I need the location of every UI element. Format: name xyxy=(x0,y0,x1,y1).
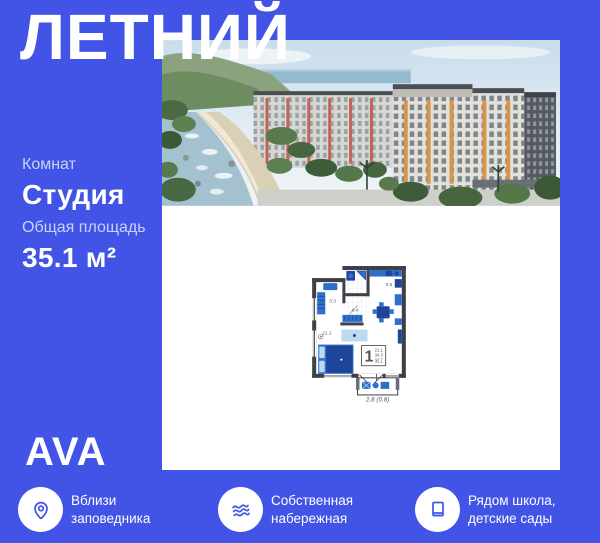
spec-total-area: Общая площадь 35.1 м² xyxy=(22,219,146,274)
waves-icon xyxy=(229,498,253,522)
area-without-balcony-value: 34.3 xyxy=(375,353,384,358)
feature-line: детские сады xyxy=(468,510,556,528)
feature-text: Рядом школа, детские сады xyxy=(468,492,556,528)
feature-icon-circle xyxy=(415,487,460,532)
spec-rooms-value: Студия xyxy=(22,179,125,211)
balcony-area-label: 2.8 (0.8) xyxy=(365,396,389,403)
feature-schools: Рядом школа, детские сады xyxy=(415,487,556,532)
floor-plan-drawing: 1 21.1 34.3 35.1 2.8 (0.8) xyxy=(312,266,406,403)
plan-summary-box: 1 21.1 34.3 35.1 xyxy=(362,346,386,366)
building-tower-middle xyxy=(393,84,473,191)
spec-area-value: 35.1 м² xyxy=(22,242,146,274)
floor-plan: 1 21.1 34.3 35.1 2.8 (0.8) xyxy=(312,266,406,403)
feature-text: Вблизи заповедника xyxy=(71,492,150,528)
feature-line: Вблизи xyxy=(71,492,150,510)
rooms-count: 1 xyxy=(365,348,374,366)
room-label-kitchen: 5.5 xyxy=(386,282,393,288)
feature-line: Собственная xyxy=(271,492,353,510)
feature-line: Рядом школа, xyxy=(468,492,556,510)
room-label-wardrobe: 3.3 xyxy=(329,298,336,304)
page-title: ЛЕТНИЙ xyxy=(20,5,291,69)
room-label-living: 21.1 xyxy=(322,331,332,337)
real-estate-poster: ЛЕТНИЙ xyxy=(0,0,600,543)
feature-line: заповедника xyxy=(71,510,150,528)
feature-line: набережная xyxy=(271,510,353,528)
feature-embankment: Собственная набережная xyxy=(218,487,353,532)
living-area-value: 21.1 xyxy=(375,348,384,353)
feature-nature-reserve: Вблизи заповедника xyxy=(18,487,150,532)
spec-rooms-label: Комнат xyxy=(22,156,125,174)
balcony: 2.8 (0.8) xyxy=(356,374,399,403)
feature-icon-circle xyxy=(18,487,63,532)
location-pin-icon xyxy=(29,498,53,522)
feature-icon-circle xyxy=(218,487,263,532)
book-icon xyxy=(426,498,450,522)
total-area-value: 35.1 xyxy=(375,359,384,364)
brand-logo: AVA xyxy=(25,432,107,472)
floor-plan-panel: 1 21.1 34.3 35.1 2.8 (0.8) xyxy=(162,206,560,470)
feature-text: Собственная набережная xyxy=(271,492,353,528)
spec-area-label: Общая площадь xyxy=(22,219,146,237)
spec-rooms: Комнат Студия xyxy=(22,156,125,211)
room-label-hall: 4.4 xyxy=(351,307,358,313)
